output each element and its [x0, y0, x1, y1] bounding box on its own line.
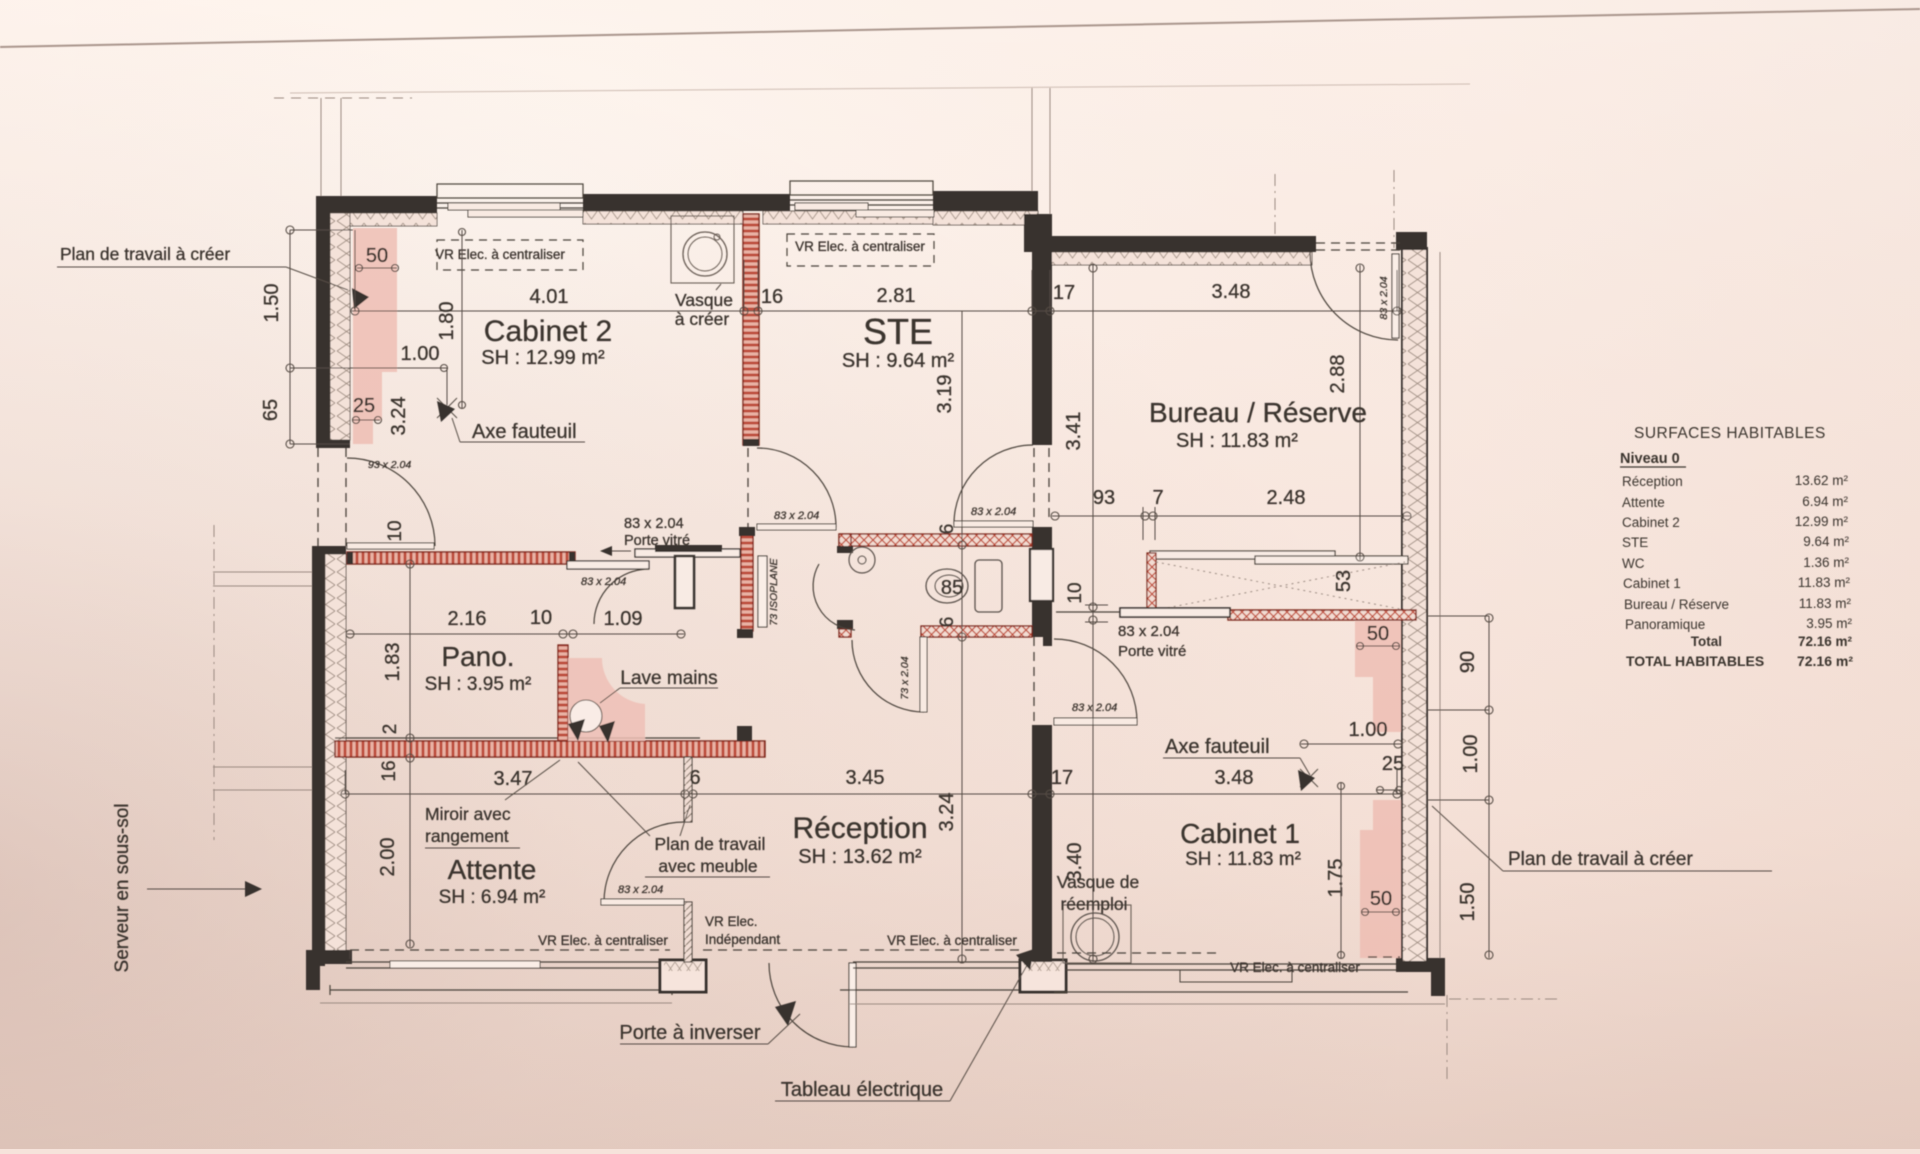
svg-text:3.24: 3.24: [388, 397, 410, 436]
svg-text:83 x 2.04: 83 x 2.04: [971, 506, 1016, 518]
svg-text:TOTAL HABITABLES: TOTAL HABITABLES: [1626, 653, 1764, 669]
svg-text:STE: STE: [1622, 535, 1648, 550]
svg-text:Miroir avec: Miroir avec: [425, 804, 511, 824]
svg-text:Total: Total: [1691, 634, 1722, 649]
svg-text:3.45: 3.45: [846, 767, 885, 789]
svg-text:3.95 m²: 3.95 m²: [1806, 616, 1852, 631]
svg-text:Serveur en sous-sol: Serveur en sous-sol: [112, 804, 133, 973]
svg-text:Cabinet 2: Cabinet 2: [484, 315, 612, 348]
svg-text:SH : 9.64 m²: SH : 9.64 m²: [842, 350, 955, 372]
svg-text:Panoramique: Panoramique: [1625, 617, 1705, 632]
svg-text:avec meuble: avec meuble: [658, 856, 757, 876]
svg-text:Vasque de: Vasque de: [1057, 872, 1139, 892]
svg-text:Attente: Attente: [448, 854, 537, 885]
svg-text:Niveau 0: Niveau 0: [1620, 451, 1680, 467]
svg-text:Plan de travail: Plan de travail: [655, 834, 766, 854]
svg-text:2.16: 2.16: [448, 608, 487, 630]
svg-text:Plan de travail à créer: Plan de travail à créer: [1508, 849, 1693, 870]
svg-text:Porte vitré: Porte vitré: [1118, 643, 1186, 660]
svg-text:SH : 11.83 m²: SH : 11.83 m²: [1176, 430, 1298, 452]
svg-text:17: 17: [1051, 767, 1073, 789]
svg-text:93: 93: [1093, 487, 1115, 509]
svg-text:16: 16: [761, 286, 783, 308]
svg-text:SH : 12.99 m²: SH : 12.99 m²: [481, 347, 605, 369]
svg-text:83 x 2.04: 83 x 2.04: [1072, 702, 1117, 714]
svg-text:2.48: 2.48: [1267, 487, 1306, 509]
svg-text:Indépendant: Indépendant: [705, 932, 780, 947]
svg-text:Cabinet 2: Cabinet 2: [1622, 515, 1680, 530]
svg-text:83 x 2.04: 83 x 2.04: [581, 576, 626, 588]
svg-text:17: 17: [1053, 282, 1075, 304]
svg-text:SH : 11.83 m²: SH : 11.83 m²: [1185, 849, 1301, 870]
svg-text:6: 6: [937, 617, 958, 628]
svg-text:83 x 2.04: 83 x 2.04: [1118, 623, 1180, 640]
svg-text:11.83 m²: 11.83 m²: [1798, 575, 1851, 590]
svg-text:65: 65: [260, 399, 282, 421]
svg-text:3.19: 3.19: [934, 375, 956, 414]
svg-text:6.94 m²: 6.94 m²: [1802, 494, 1848, 509]
svg-text:1.75: 1.75: [1325, 859, 1347, 898]
svg-text:STE: STE: [863, 311, 933, 352]
svg-text:73 ISOPLANE: 73 ISOPLANE: [768, 557, 780, 625]
svg-text:2.00: 2.00: [377, 838, 399, 877]
svg-text:Bureau / Réserve: Bureau / Réserve: [1624, 597, 1729, 612]
svg-text:4.01: 4.01: [530, 286, 569, 308]
svg-text:Lave mains: Lave mains: [620, 668, 717, 689]
svg-text:Cabinet 1: Cabinet 1: [1623, 576, 1681, 591]
svg-text:2: 2: [380, 724, 401, 735]
svg-text:1.00: 1.00: [401, 343, 440, 365]
svg-text:rangement: rangement: [425, 826, 509, 846]
svg-text:1.00: 1.00: [1460, 735, 1482, 774]
svg-text:83 x 2.04: 83 x 2.04: [1378, 276, 1390, 319]
svg-text:83 x 2.04: 83 x 2.04: [774, 510, 819, 522]
svg-text:SH : 6.94 m²: SH : 6.94 m²: [439, 887, 546, 908]
svg-text:90: 90: [1457, 651, 1479, 673]
svg-text:25: 25: [1382, 753, 1404, 775]
svg-text:93 x 2.04: 93 x 2.04: [368, 459, 411, 471]
svg-text:Cabinet 1: Cabinet 1: [1180, 818, 1300, 849]
svg-text:3.48: 3.48: [1212, 281, 1251, 303]
svg-text:2.81: 2.81: [877, 285, 916, 307]
svg-text:16: 16: [379, 760, 400, 781]
svg-text:13.62 m²: 13.62 m²: [1795, 473, 1849, 488]
svg-text:SURFACES HABITABLES: SURFACES HABITABLES: [1634, 425, 1826, 442]
svg-text:3.47: 3.47: [494, 768, 533, 790]
svg-text:2.88: 2.88: [1327, 355, 1349, 394]
svg-text:1.80: 1.80: [436, 302, 458, 341]
svg-text:9.64 m²: 9.64 m²: [1803, 534, 1849, 549]
svg-text:85: 85: [941, 577, 963, 599]
svg-text:VR Elec. à centraliser: VR Elec. à centraliser: [538, 933, 668, 948]
svg-text:VR Elec. à centraliser: VR Elec. à centraliser: [795, 239, 925, 254]
svg-text:10: 10: [385, 520, 406, 541]
svg-text:10: 10: [1065, 582, 1086, 603]
svg-text:1.83: 1.83: [382, 643, 404, 682]
svg-text:1.09: 1.09: [604, 608, 643, 630]
svg-text:Réception: Réception: [1622, 474, 1683, 489]
svg-text:50: 50: [366, 245, 388, 267]
svg-text:Porte à inverser: Porte à inverser: [619, 1022, 761, 1044]
svg-text:1.50: 1.50: [1457, 883, 1479, 922]
svg-text:Attente: Attente: [1622, 495, 1665, 510]
svg-text:1.50: 1.50: [261, 284, 283, 323]
svg-text:VR Elec. à centraliser: VR Elec. à centraliser: [887, 933, 1017, 948]
svg-text:WC: WC: [1622, 556, 1645, 571]
svg-text:3.48: 3.48: [1215, 767, 1254, 789]
svg-text:1.36 m²: 1.36 m²: [1803, 555, 1849, 570]
svg-text:Pano.: Pano.: [441, 641, 514, 672]
svg-text:à créer: à créer: [675, 309, 730, 329]
svg-text:7: 7: [1152, 487, 1163, 509]
svg-text:Plan de travail à créer: Plan de travail à créer: [60, 244, 230, 264]
svg-text:Porte vitré: Porte vitré: [624, 533, 690, 549]
svg-text:réemploi: réemploi: [1060, 894, 1127, 914]
svg-text:VR Elec. à centraliser: VR Elec. à centraliser: [435, 247, 565, 262]
svg-text:Axe fauteuil: Axe fauteuil: [472, 421, 577, 443]
svg-text:10: 10: [530, 607, 552, 629]
svg-text:12.99 m²: 12.99 m²: [1795, 514, 1849, 529]
svg-text:50: 50: [1370, 888, 1392, 910]
svg-text:Tableau électrique: Tableau électrique: [781, 1079, 943, 1101]
svg-text:Axe fauteuil: Axe fauteuil: [1165, 736, 1270, 758]
svg-text:3.24: 3.24: [936, 793, 958, 832]
svg-text:25: 25: [353, 395, 375, 417]
svg-text:Réception: Réception: [792, 812, 927, 845]
svg-text:50: 50: [1367, 623, 1389, 645]
svg-text:1.00: 1.00: [1349, 719, 1388, 741]
svg-text:VR Elec. à centraliser: VR Elec. à centraliser: [1230, 960, 1360, 975]
svg-text:73 x 2.04: 73 x 2.04: [899, 656, 911, 699]
svg-text:SH : 3.95 m²: SH : 3.95 m²: [425, 674, 532, 695]
svg-text:Vasque: Vasque: [675, 290, 733, 310]
svg-text:3.41: 3.41: [1063, 412, 1085, 451]
svg-text:83 x 2.04: 83 x 2.04: [618, 884, 663, 896]
svg-text:53: 53: [1333, 570, 1355, 592]
svg-text:6: 6: [689, 767, 700, 789]
svg-text:11.83 m²: 11.83 m²: [1799, 596, 1852, 611]
svg-text:VR Elec.: VR Elec.: [705, 914, 758, 929]
svg-text:SH : 13.62 m²: SH : 13.62 m²: [798, 846, 922, 868]
svg-text:83 x 2.04: 83 x 2.04: [624, 516, 684, 532]
svg-text:72.16 m²: 72.16 m²: [1797, 653, 1853, 669]
svg-text:6: 6: [937, 524, 958, 535]
svg-text:Bureau / Réserve: Bureau / Réserve: [1149, 397, 1367, 428]
svg-text:72.16 m²: 72.16 m²: [1798, 634, 1853, 649]
